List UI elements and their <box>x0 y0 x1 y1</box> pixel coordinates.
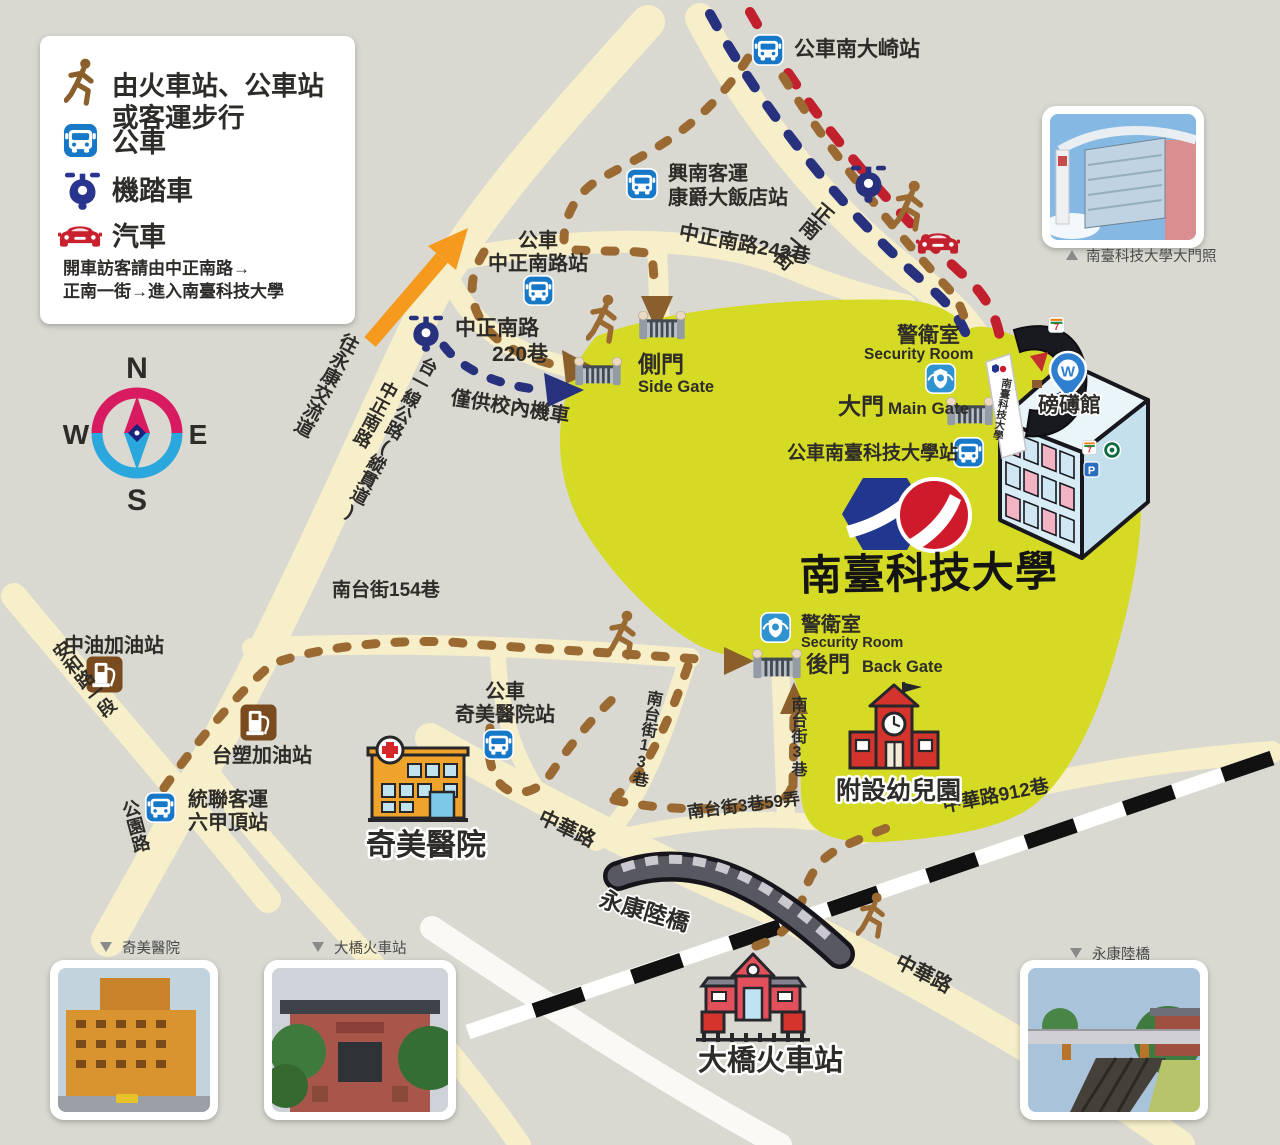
label-train-station: 大橋火車站 <box>698 1044 843 1077</box>
seven-eleven-icon-face <box>1082 440 1096 454</box>
label-guard-main-zh: 警衛室 <box>896 323 960 347</box>
security-room-icon-main <box>926 364 955 393</box>
fpc-gas-icon <box>240 704 276 740</box>
compass-w: W <box>63 419 90 450</box>
w-letter: W <box>1061 364 1076 381</box>
label-bus-tonglian-1: 統聯客運 <box>188 787 268 811</box>
photo-station: 大橋火車站 <box>264 940 462 1120</box>
label-bus-xingnan-2: 康爵大飯店站 <box>668 185 788 209</box>
photo-bridge: 永康陸橋 <box>1020 946 1208 1120</box>
starbucks-icon <box>1104 442 1121 459</box>
university-name-label: 南臺科技大學 <box>799 547 1058 600</box>
label-bus-zhongzheng-1: 公車 <box>518 228 558 252</box>
campus-access-map: 7 <box>0 0 1280 1145</box>
caption-hospital-photo: 奇美醫院 <box>122 940 180 957</box>
bus-stop-icon-chimei <box>484 730 513 759</box>
legend-walk-label-1: 由火車站、公車站 <box>112 71 324 101</box>
label-cpc: 中油加油站 <box>64 633 164 657</box>
label-guard-back-zh: 警衛室 <box>801 612 861 636</box>
label-hospital: 奇美醫院 <box>366 828 486 862</box>
legend-bus-icon <box>63 123 98 158</box>
label-bus-tonglian-2: 六甲頂站 <box>188 810 268 834</box>
parking-icon: P <box>1084 462 1099 477</box>
seven-eleven-icon-top <box>1049 317 1065 333</box>
bus-stop-icon-xingnan <box>627 169 657 199</box>
label-bus-nandaqi: 公車南大崎站 <box>794 37 920 61</box>
bus-stop-icon-nandaqi <box>753 35 783 65</box>
label-nantai154: 南台街154巷 <box>332 578 441 601</box>
label-bus-stust: 公車南臺科技大學站 <box>787 441 958 464</box>
legend-panel: 由火車站、公車站 或客運步行 公車 機踏車 汽車 開車訪客請由中正南路→ 正南一… <box>40 36 355 324</box>
legend-note-2: 正南一街→進入南臺科技大學 <box>63 281 284 301</box>
label-main-gate-zh: 大門 <box>838 393 884 419</box>
label-bus-chimei-1: 公車 <box>485 679 525 703</box>
label-main-gate-en: Main Gate <box>888 399 969 418</box>
label-guard-main-en: Security Room <box>864 346 973 363</box>
compass-e: E <box>189 419 208 450</box>
photo-main-gate: 南臺科技大學大門照 <box>1042 106 1217 265</box>
map-canvas: 7 <box>0 0 1280 1145</box>
label-side-gate-zh: 側門 <box>637 351 684 377</box>
hospital-building <box>368 737 468 822</box>
label-kindergarten: 附設幼兒園 <box>836 776 961 805</box>
legend-car-label: 汽車 <box>112 222 166 252</box>
label-bus-chimei-2: 奇美醫院站 <box>455 702 555 726</box>
svg-text:P: P <box>1088 465 1095 477</box>
label-fpc: 台塑加油站 <box>212 743 312 767</box>
legend-bus-label: 公車 <box>112 128 166 158</box>
label-220-2: 220巷 <box>492 342 549 366</box>
label-bus-xingnan-1: 興南客運 <box>668 161 748 185</box>
bus-stop-icon-zhongzheng <box>524 276 553 305</box>
bus-stop-icon-stust <box>954 438 983 467</box>
bus-stop-icon-tonglian <box>146 793 175 822</box>
label-back-gate-zh: 後門 <box>806 652 850 677</box>
label-back-gate-en: Back Gate <box>862 658 943 676</box>
label-220-1: 中正南路 <box>455 316 540 340</box>
caption-main-gate-photo: 南臺科技大學大門照 <box>1086 247 1217 265</box>
label-side-gate-en: Side Gate <box>638 378 714 396</box>
legend-note-1: 開車訪客請由中正南路→ <box>63 258 250 278</box>
university-logo <box>842 478 970 551</box>
legend-scooter-label: 機踏車 <box>112 176 193 206</box>
security-room-icon-back <box>761 613 790 642</box>
label-bus-zhongzheng-2: 中正南路站 <box>488 251 588 275</box>
photo-hospital: 奇美醫院 <box>50 940 218 1120</box>
compass-n: N <box>126 352 148 385</box>
caption-station-photo: 大橋火車站 <box>334 940 407 957</box>
label-pangbo-hall: 磅礡館 <box>1038 393 1101 417</box>
compass-s: S <box>127 484 147 517</box>
label-guard-back-en: Security Room <box>801 635 903 651</box>
